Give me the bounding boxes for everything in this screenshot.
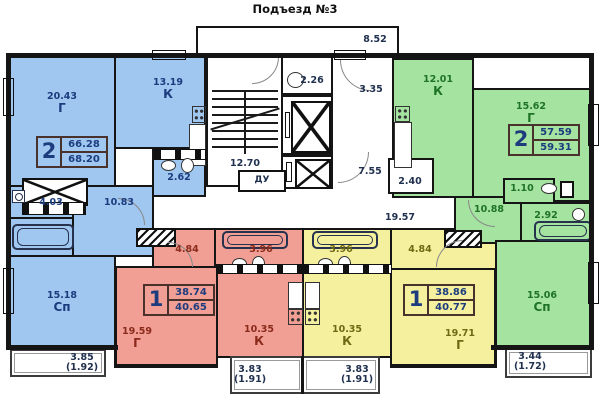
kitchen-counter-icon [288,282,303,310]
window-icon [3,268,14,314]
apartment-badge-red: 1 38.7440.65 [143,284,215,316]
label-green-wc: 1.10 [498,183,546,194]
label-balcony-yellow: 3.83(1.91) [333,365,381,385]
bath-counter-icon [216,264,306,274]
label-red-living: 19.59Г [113,326,161,349]
cabinet-icon [560,181,574,198]
washer-icon [12,190,25,203]
label-yellow-bath: 3.96 [317,244,365,255]
window-icon [588,262,599,304]
bath-counter-icon [154,149,206,160]
plan-title: Подъезд №3 [195,2,395,16]
label-vestibule: 8.52 [351,34,399,45]
window-icon [334,50,366,60]
label-yellow-kitchen: 10.35К [323,324,371,347]
badge-room-count: 2 [510,126,534,154]
bathtub-icon [534,221,592,241]
sink-icon [161,160,176,171]
label-green-bedroom: 15.06Сп [518,290,566,313]
label-stairs: 12.70 [221,158,269,169]
badge-area-living: 40.65 [169,299,213,314]
window-icon [3,78,14,116]
label-yellow-hall: 4.84 [396,244,444,255]
sink-icon [572,208,585,221]
exterior-wall-bottom-left [6,345,118,350]
stairs-divider [244,90,246,154]
bathtub-icon [12,224,74,250]
smoke-duct-box: ДУ [238,170,286,192]
smoke-duct-label: ДУ [255,175,270,185]
label-green-hall: 10.88 [465,204,513,215]
badge-area-living: 40.77 [429,299,473,314]
label-balcony-green: 3.44(1.72) [506,352,554,372]
apartment-badge-yellow: 1 38.8640.77 [403,284,475,316]
room-yellow-living [390,268,497,368]
window-icon [152,50,186,60]
kitchen-counter-icon [305,282,320,310]
badge-area-living: 59.31 [534,139,578,154]
apartment-badge-green: 2 57.5959.31 [508,124,580,156]
kitchen-counter-icon [394,122,412,168]
stove-icon [395,106,410,122]
label-yellow-living: 19.71Г [436,328,484,351]
bath-counter-icon [302,264,392,274]
elevator-icon [291,101,331,153]
label-blue-kitchen: 13.19К [144,77,192,100]
label-green-living: 15.62Г [507,101,555,124]
stove-icon [192,106,206,123]
badge-area-living: 68.20 [62,151,106,166]
badge-area-total: 66.28 [62,138,106,151]
label-blue-living: 20.43Г [38,91,86,114]
label-corridor-main: 19.57 [376,212,424,223]
label-trash-chute-room: 2.26 [288,75,336,86]
label-balcony-red: 3.83(1.91) [226,365,274,385]
label-balcony-blue: 3.85(1.92) [58,353,106,373]
stove-icon [305,308,320,325]
room-red-living [114,266,218,368]
badge-room-count: 1 [405,286,429,314]
apartment-badge-blue: 2 66.2868.20 [36,136,108,168]
badge-area-total: 57.59 [534,126,578,139]
window-icon [588,104,599,146]
elevator-icon [295,159,331,189]
exterior-wall-bottom-right [491,345,594,350]
elevator-door-icon [285,112,290,138]
balcony-divider-wall [301,356,304,394]
elevator-door-icon [286,162,292,182]
badge-area-total: 38.86 [429,286,473,299]
label-blue-wc: 4.03 [27,197,75,208]
label-green-bath: 2.92 [522,210,570,221]
label-red-kitchen: 10.35К [235,324,283,347]
badge-room-count: 1 [145,286,169,314]
label-red-bath: 3.96 [237,244,285,255]
toilet-icon [181,158,194,173]
label-storeroom: 2.40 [386,176,434,187]
badge-room-count: 2 [38,138,62,166]
label-red-hall: 4.84 [163,244,211,255]
badge-area-total: 38.74 [169,286,213,299]
label-green-kitchen: 12.01К [414,74,462,97]
label-corridor-upper: 3.35 [347,84,395,95]
label-blue-bedroom: 15.18Сп [38,290,86,313]
label-blue-hall: 10.83 [95,197,143,208]
floor-plan: Подъезд №3 ДУ [0,0,600,400]
stove-icon [288,308,303,325]
label-blue-bath: 2.62 [155,172,203,183]
